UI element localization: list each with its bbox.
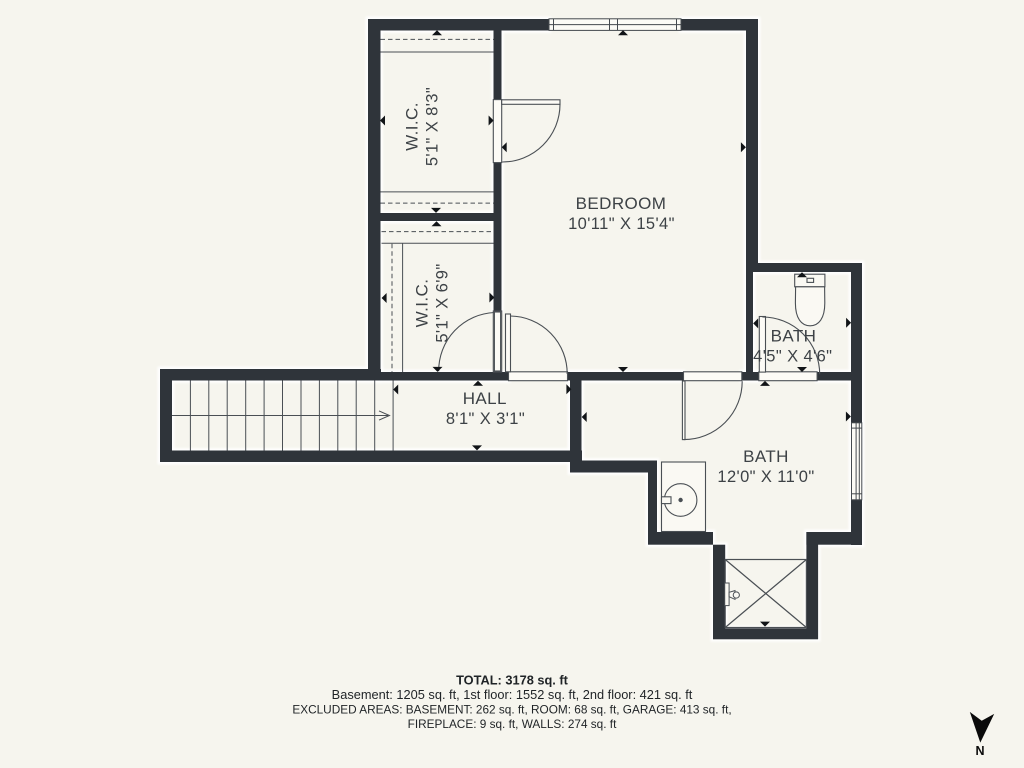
svg-text:HALL: HALL [463, 389, 507, 408]
svg-text:5'1" X 8'3": 5'1" X 8'3" [424, 87, 442, 166]
svg-text:10'11" X 15'4": 10'11" X 15'4" [568, 215, 675, 233]
svg-text:W.I.C.: W.I.C. [403, 102, 422, 151]
svg-text:EXCLUDED AREAS: BASEMENT: 262: EXCLUDED AREAS: BASEMENT: 262 sq. ft, RO… [292, 703, 731, 717]
svg-text:BATH: BATH [771, 327, 817, 346]
svg-text:TOTAL: 3178 sq. ft: TOTAL: 3178 sq. ft [456, 673, 569, 688]
svg-text:FIREPLACE: 9 sq. ft, WALLS: 27: FIREPLACE: 9 sq. ft, WALLS: 274 sq. ft [408, 717, 617, 731]
svg-text:4'5" X 4'6": 4'5" X 4'6" [753, 348, 832, 366]
svg-text:12'0" X 11'0": 12'0" X 11'0" [717, 468, 814, 486]
svg-text:W.I.C.: W.I.C. [413, 279, 432, 328]
svg-text:BEDROOM: BEDROOM [576, 194, 667, 213]
svg-text:BATH: BATH [743, 447, 789, 466]
svg-text:5'1" X 6'9": 5'1" X 6'9" [434, 263, 452, 342]
svg-text:8'1" X 3'1": 8'1" X 3'1" [446, 410, 525, 428]
svg-text:Basement: 1205 sq. ft, 1st flo: Basement: 1205 sq. ft, 1st floor: 1552 s… [332, 687, 693, 702]
svg-text:N: N [975, 744, 984, 758]
